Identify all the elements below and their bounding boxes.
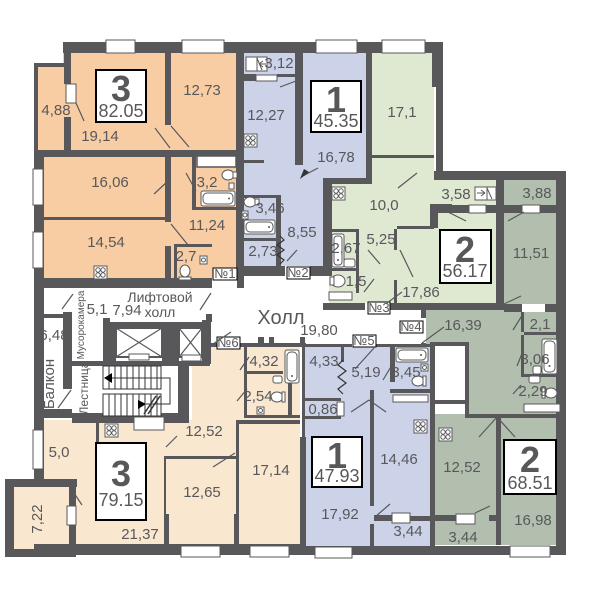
svg-text:3,2: 3,2 (197, 174, 218, 191)
svg-text:5,19: 5,19 (351, 364, 380, 381)
svg-text:14,46: 14,46 (380, 451, 418, 468)
svg-text:5,1: 5,1 (87, 301, 108, 318)
svg-text:16,06: 16,06 (91, 174, 129, 191)
svg-text:3,45: 3,45 (391, 364, 420, 381)
svg-text:№4: №4 (400, 319, 421, 334)
svg-text:21,37: 21,37 (121, 526, 159, 543)
svg-text:11,51: 11,51 (513, 245, 549, 262)
svg-text:2,7: 2,7 (176, 248, 197, 265)
svg-text:12,52: 12,52 (443, 459, 481, 476)
svg-text:68.51: 68.51 (507, 473, 552, 493)
svg-text:3,44: 3,44 (448, 529, 477, 546)
svg-text:№2: №2 (287, 265, 308, 280)
svg-text:Холл: Холл (257, 307, 304, 329)
svg-text:1,5: 1,5 (346, 273, 367, 290)
svg-text:3,46: 3,46 (255, 200, 284, 217)
svg-text:4,32: 4,32 (249, 353, 278, 370)
svg-text:16,78: 16,78 (317, 149, 355, 166)
svg-text:47.93: 47.93 (314, 466, 359, 486)
svg-text:0,86: 0,86 (308, 401, 337, 418)
svg-text:12,27: 12,27 (247, 107, 285, 124)
svg-text:11,24: 11,24 (189, 217, 225, 234)
svg-text:45.35: 45.35 (313, 111, 358, 131)
svg-text:17,86: 17,86 (402, 284, 440, 301)
svg-text:2,29: 2,29 (518, 383, 547, 400)
svg-text:№3: №3 (368, 300, 389, 315)
svg-text:17,92: 17,92 (321, 506, 359, 523)
svg-text:3,58: 3,58 (441, 186, 470, 203)
svg-text:4,88: 4,88 (41, 102, 70, 119)
svg-text:12,73: 12,73 (183, 82, 221, 99)
svg-text:12,65: 12,65 (183, 484, 221, 501)
svg-text:2,1: 2,1 (530, 316, 551, 333)
svg-text:19,14: 19,14 (81, 128, 119, 145)
svg-text:56.17: 56.17 (442, 261, 487, 281)
svg-text:3,06: 3,06 (520, 351, 549, 368)
svg-text:Лифтовой: Лифтовой (127, 289, 192, 305)
svg-text:79.15: 79.15 (98, 490, 143, 510)
svg-text:холл: холл (145, 304, 176, 320)
svg-text:2,67: 2,67 (331, 240, 360, 257)
svg-text:82.05: 82.05 (98, 101, 143, 121)
svg-text:5,0: 5,0 (49, 444, 70, 461)
svg-text:16,98: 16,98 (514, 512, 552, 529)
svg-text:14,54: 14,54 (87, 234, 125, 251)
svg-text:3,12: 3,12 (264, 55, 293, 72)
svg-text:3,88: 3,88 (522, 185, 551, 202)
svg-text:10,0: 10,0 (369, 197, 398, 214)
svg-text:№6: №6 (217, 335, 238, 350)
svg-text:19,80: 19,80 (300, 322, 338, 339)
svg-text:16,39: 16,39 (444, 317, 482, 334)
svg-text:12,52: 12,52 (185, 423, 223, 440)
svg-text:2,73: 2,73 (248, 243, 277, 260)
svg-text:5,25: 5,25 (366, 231, 395, 248)
svg-text:4,33: 4,33 (309, 353, 338, 370)
svg-text:17,14: 17,14 (252, 462, 290, 479)
svg-text:2,54: 2,54 (243, 388, 272, 405)
svg-text:3,44: 3,44 (393, 523, 422, 540)
svg-text:Мусорокамера: Мусорокамера (76, 290, 87, 359)
svg-text:№1: №1 (214, 266, 235, 281)
svg-text:Балкон: Балкон (41, 359, 58, 409)
svg-text:№5: №5 (353, 333, 374, 348)
svg-text:7,22: 7,22 (29, 504, 46, 533)
svg-text:6,48: 6,48 (39, 327, 68, 344)
svg-text:8,55: 8,55 (287, 224, 316, 241)
svg-text:17,1: 17,1 (387, 104, 416, 121)
svg-text:3: 3 (111, 453, 131, 494)
svg-text:Лестница: Лестница (77, 361, 91, 414)
